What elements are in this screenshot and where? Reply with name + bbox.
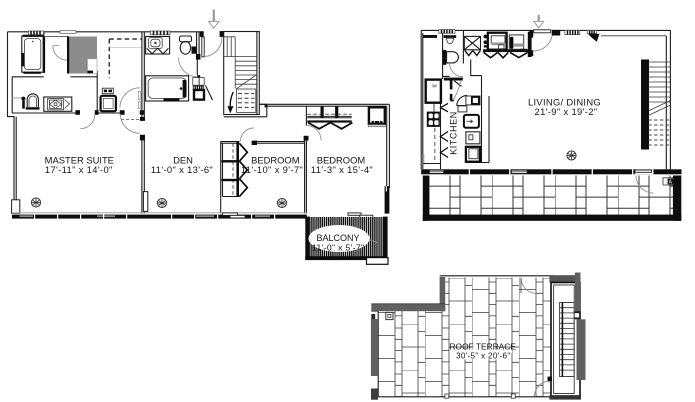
svg-text:KITCHEN: KITCHEN xyxy=(449,111,459,155)
svg-text:17'-11" x 14'-0": 17'-11" x 14'-0" xyxy=(45,164,113,175)
svg-text:11'-3" x 15'-4": 11'-3" x 15'-4" xyxy=(311,164,373,175)
svg-text:30'-5" x 20'-6": 30'-5" x 20'-6" xyxy=(456,352,510,361)
svg-text:11'-0" x 13'-6": 11'-0" x 13'-6" xyxy=(151,164,213,175)
svg-text:21'-9" x 19'-2": 21'-9" x 19'-2" xyxy=(535,106,598,117)
svg-text:ROOF TERRACE: ROOF TERRACE xyxy=(450,341,517,351)
svg-text:11'-10" x 9'-7": 11'-10" x 9'-7" xyxy=(241,164,303,175)
svg-text:11'-0" x 5'-7": 11'-0" x 5'-7" xyxy=(312,242,364,252)
